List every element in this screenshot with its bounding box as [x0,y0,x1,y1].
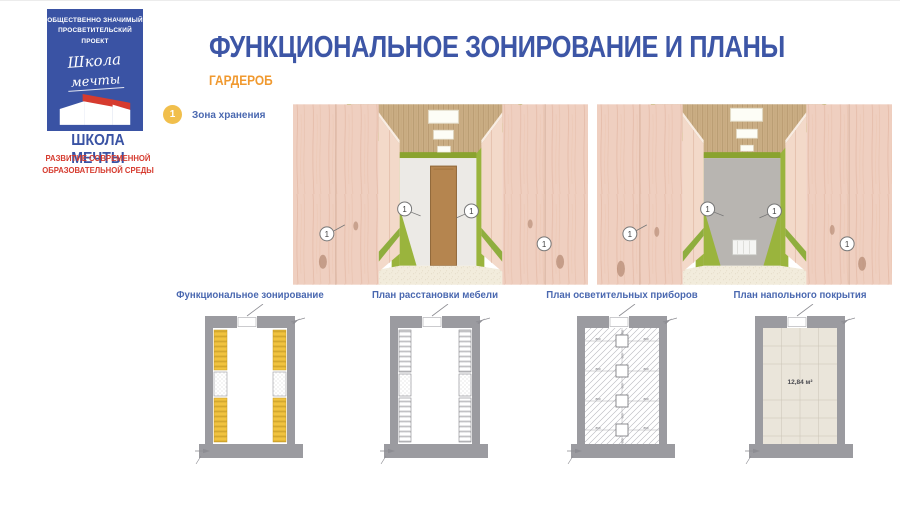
zone-marker-label: 1 [325,230,330,239]
plan-functional-zoning-drawing [195,304,305,464]
zone-marker-label: 1 [542,240,547,249]
legend-number-badge: 1 [163,105,182,124]
plan-furniture-drawing [380,304,490,464]
dim-label: 600 [621,353,625,358]
plan-label-zoning: Функциональное зонирование [163,289,338,301]
logo-project-type: ОБЩЕСТВЕННО ЗНАЧИМЫЙ ПРОСВЕТИТЕЛЬСКИЙ ПР… [47,16,143,47]
dim-label: 860 [595,367,600,371]
dim-label: 860 [595,397,600,401]
plan-functional-zoning [195,304,305,464]
page-title: ФУНКЦИОНАЛЬНОЕ ЗОНИРОВАНИЕ И ПЛАНЫ [209,29,785,65]
plan-label-lighting: План осветительных приборов [535,289,710,301]
plan-furniture [380,304,490,464]
logo-script-wordmark: Школа мечты [46,49,144,92]
logo-blue-box: ОБЩЕСТВЕННО ЗНАЧИМЫЙ ПРОСВЕТИТЕЛЬСКИЙ ПР… [47,9,143,131]
render-2-image: 1 1 1 1 [597,104,892,285]
zone-marker-label: 1 [705,205,710,214]
plan-label-furniture: План расстановки мебели [348,289,523,301]
render-1-image: 1 1 1 1 [293,104,588,285]
dim-label: 860 [643,397,648,401]
logo-script-line1: Школа [46,49,143,72]
legend: 1 Зона хранения [163,105,269,124]
school-building-icon [58,91,132,127]
zone-marker: 1 [537,237,551,251]
render-wardrobe-view-2: 1 1 1 1 [597,104,892,285]
page-subtitle: ГАРДЕРОБ [209,73,273,88]
logo-project-line2: ПРОСВЕТИТЕЛЬСКИЙ ПРОЕКТ [47,26,143,47]
room-area-label: 12,84 м² [787,379,813,386]
logo-project-line1: ОБЩЕСТВЕННО ЗНАЧИМЫЙ [47,16,143,26]
zone-marker-label: 1 [628,230,633,239]
logo-script-line2: мечты [68,72,124,91]
render-wardrobe-view-1: 1 1 1 1 [293,104,588,285]
dim-label: 860 [643,337,648,341]
dim-label: 860 [595,337,600,341]
logo-tagline-line1: РАЗВИТИЕ СОВРЕМЕННОЙ [41,153,155,165]
plan-label-flooring: План напольного покрытия [713,289,888,301]
dim-label: 600 [621,330,625,335]
dim-label: 600 [621,438,625,443]
dim-label: 860 [643,426,648,430]
zone-marker: 1 [840,237,854,251]
legend-item-label: Зона хранения [192,109,265,121]
plan-flooring: 12,84 м² [745,304,855,464]
zone-marker-label: 1 [402,205,407,214]
dim-label: 600 [621,413,625,418]
zone-marker-label: 1 [469,207,474,216]
zone-marker-label: 1 [845,240,850,249]
dim-label: 600 [621,383,625,388]
dim-label: 860 [595,426,600,430]
zone-marker-label: 1 [772,207,777,216]
plan-lighting: 860 860 860 860 860 860 860 860 600 600 … [567,304,677,464]
dim-label: 860 [643,367,648,371]
slide: ОБЩЕСТВЕННО ЗНАЧИМЫЙ ПРОСВЕТИТЕЛЬСКИЙ ПР… [0,0,900,507]
plan-lighting-drawing: 860 860 860 860 860 860 860 860 600 600 … [567,304,677,464]
plan-flooring-drawing: 12,84 м² [745,304,855,464]
logo-tagline: РАЗВИТИЕ СОВРЕМЕННОЙ ОБРАЗОВАТЕЛЬНОЙ СРЕ… [41,153,155,177]
logo-tagline-line2: ОБРАЗОВАТЕЛЬНОЙ СРЕДЫ [41,165,155,177]
